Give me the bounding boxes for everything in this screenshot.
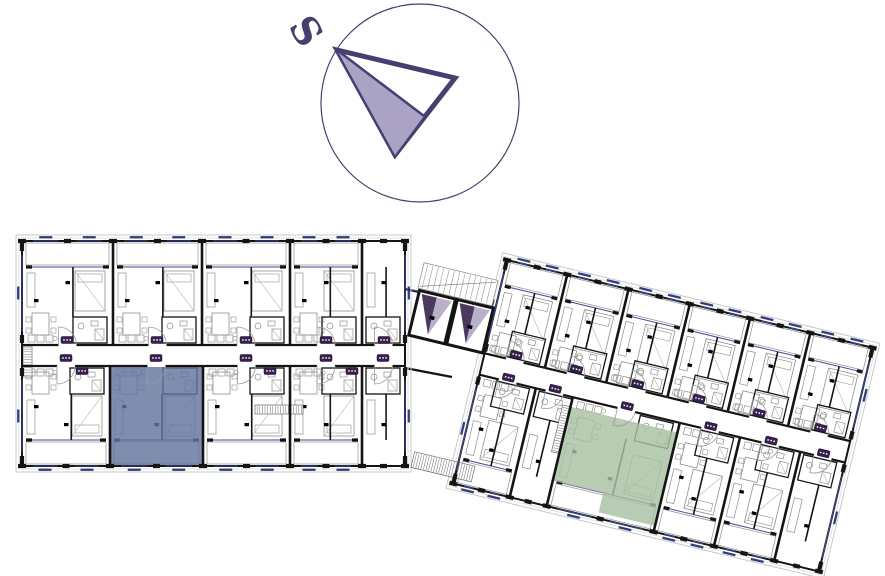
building-slab bbox=[22, 241, 405, 466]
unit-badge[interactable] bbox=[61, 337, 73, 344]
unit-badge[interactable] bbox=[151, 337, 163, 344]
unit-badge[interactable] bbox=[240, 337, 252, 344]
hatch-strip bbox=[255, 405, 303, 414]
unit-badge[interactable] bbox=[60, 355, 72, 362]
unit-badge[interactable] bbox=[264, 368, 276, 375]
unit-badge[interactable] bbox=[320, 355, 332, 362]
right-building bbox=[374, 235, 880, 576]
unit-badge[interactable] bbox=[150, 355, 162, 362]
floor-plan-page: S bbox=[0, 0, 885, 576]
compass-rose: S bbox=[280, 4, 519, 202]
unit-badge[interactable] bbox=[240, 355, 252, 362]
unit-badge[interactable] bbox=[346, 368, 358, 375]
unit-badge[interactable] bbox=[378, 337, 390, 344]
stairwell-core bbox=[407, 263, 500, 353]
compass-south-label: S bbox=[280, 7, 333, 54]
hatch-strip bbox=[23, 347, 32, 377]
floor-plan-svg: S bbox=[0, 0, 885, 576]
unit-badge[interactable] bbox=[76, 368, 88, 375]
compass-circle bbox=[321, 4, 519, 202]
unit-badge[interactable] bbox=[377, 355, 389, 362]
left-building bbox=[16, 235, 411, 472]
unit-badge[interactable] bbox=[320, 337, 332, 344]
